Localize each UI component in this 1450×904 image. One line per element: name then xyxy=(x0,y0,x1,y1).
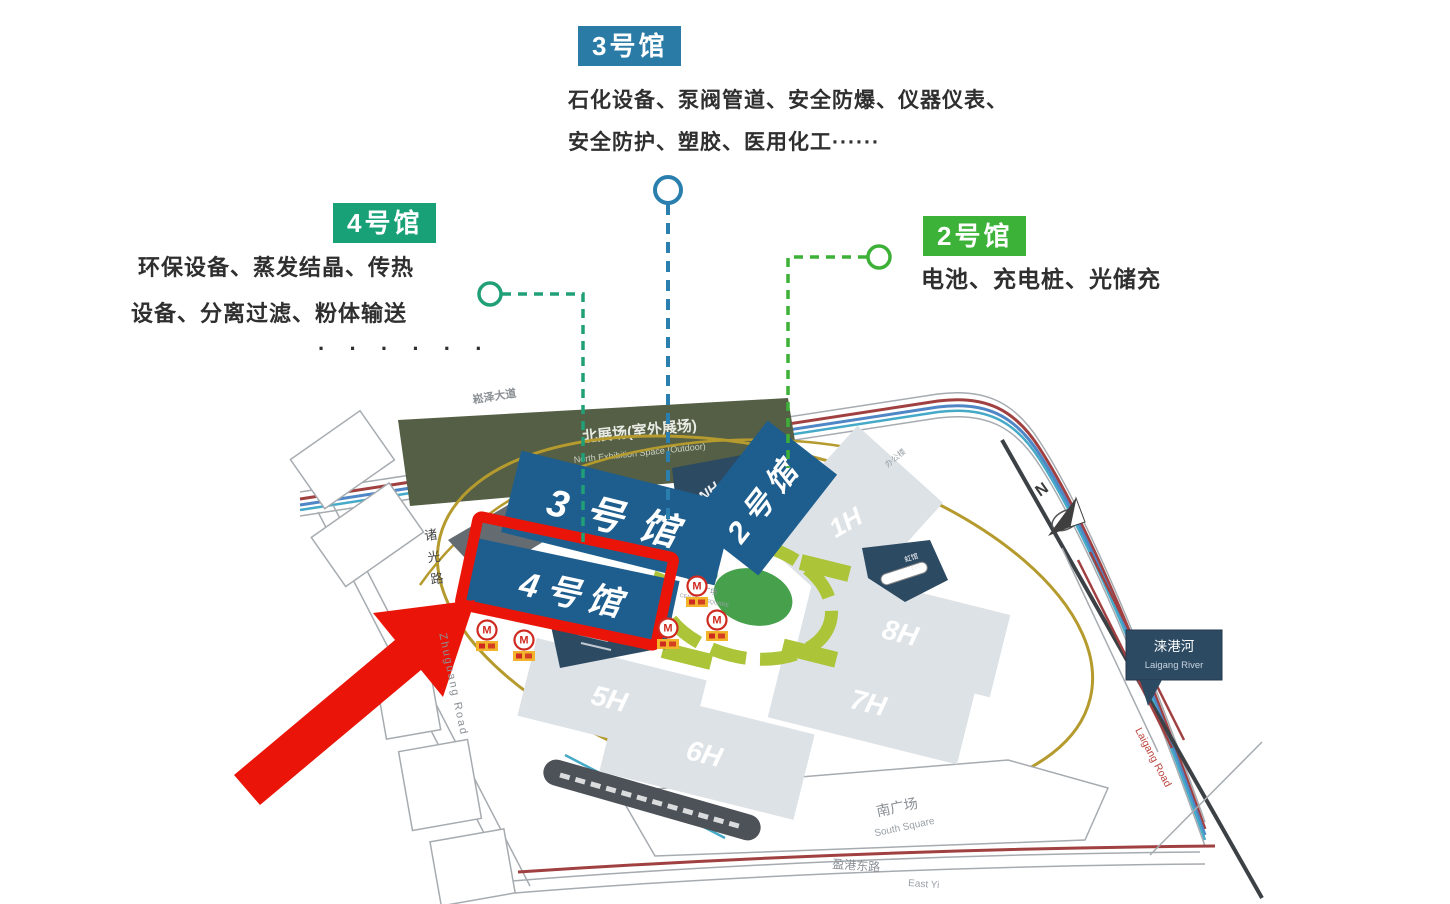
yinggang-road-label-zh: 盈港东路 xyxy=(832,856,881,874)
songze-avenue-label: 崧泽大道 xyxy=(472,386,518,407)
hall3-callout-tag: 3号馆 xyxy=(578,26,681,66)
hall3-connector-dot xyxy=(655,177,681,203)
hall3-callout-line2: 安全防护、塑胶、医用化工······ xyxy=(568,126,880,156)
metro-station-icon: M xyxy=(476,621,498,652)
metro-station-icon: M xyxy=(686,577,708,608)
exhibition-map-page: 北展场(室外展场) North Exhibition Space (Outdoo… xyxy=(0,0,1450,904)
hall4-callout-line2: 设备、分离过滤、粉体输送 xyxy=(131,296,407,328)
svg-text:M: M xyxy=(663,623,672,635)
river-label-box xyxy=(1126,630,1222,680)
hall4-callout-tag: 4号馆 xyxy=(333,203,436,243)
hall2-callout-tag: 2号馆 xyxy=(923,216,1026,256)
svg-text:M: M xyxy=(712,615,721,627)
block xyxy=(430,829,515,904)
block xyxy=(399,740,482,831)
metro-station-icon: M xyxy=(513,631,535,662)
hall4-connector-dot xyxy=(479,283,501,305)
svg-text:M: M xyxy=(692,581,701,593)
yinggang-road-label-en: East Yi xyxy=(908,878,940,891)
hall4-callout-line1: 环保设备、蒸发结晶、传热 xyxy=(138,250,414,282)
svg-text:M: M xyxy=(519,635,528,647)
hall2-connector-dot xyxy=(868,246,890,268)
road-line xyxy=(1150,742,1262,855)
hall2-callout-line1: 电池、充电桩、光储充 xyxy=(921,260,1161,294)
river-label: 涞港河 Laigang River xyxy=(1126,630,1222,706)
svg-text:M: M xyxy=(482,625,491,637)
metro-station-icon: M xyxy=(657,619,679,650)
river-label-en: Laigang River xyxy=(1145,660,1204,671)
metro-station-icon: M xyxy=(706,611,728,642)
hall4-callout-dots: · · · · · · xyxy=(318,336,492,362)
hall3-callout-line1: 石化设备、泵阀管道、安全防爆、仪器仪表、 xyxy=(568,84,1008,114)
river-label-zh: 涞港河 xyxy=(1154,639,1195,654)
